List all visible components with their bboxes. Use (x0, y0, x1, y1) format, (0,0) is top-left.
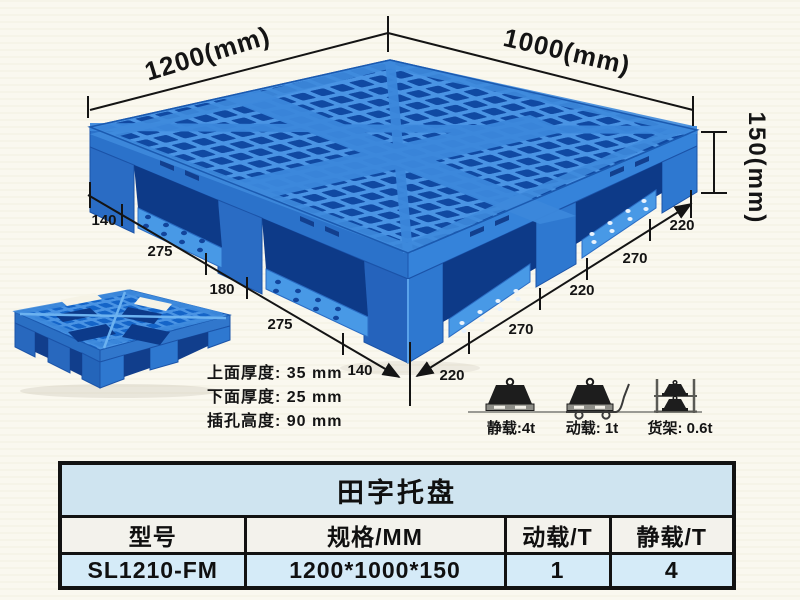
header-model: 型号 (60, 517, 245, 554)
small-pallet-shadow (20, 384, 220, 398)
height-dimension-label: 150(mm) (743, 112, 770, 225)
spec-table-title: 田字托盘 (60, 463, 734, 517)
static-load-label: 静载:4t (487, 419, 535, 437)
load-capacity-icons: 静载:4t 动载: 1t 货架: 0.6t (468, 379, 713, 437)
right-segment-label: 220 (569, 282, 594, 299)
height-dimension: 150(mm) (701, 112, 770, 225)
thickness-notes: 上面厚度: 35 mm 下面厚度: 25 mm 插孔高度: 90 mm (207, 363, 342, 430)
depth-dimension-label: 1000(mm) (501, 22, 634, 80)
right-segment-label: 220 (439, 367, 464, 384)
right-segment-label: 270 (508, 321, 533, 338)
left-segment-label: 140 (347, 362, 372, 379)
header-dynamic-load: 动载/T (505, 517, 610, 554)
spec-table-data-row: SL1210-FM 1200*1000*150 1 4 (60, 554, 734, 589)
rack-load-icon (654, 379, 697, 413)
width-dimension-label: 1200(mm) (141, 20, 274, 87)
right-segment-label: 220 (669, 217, 694, 234)
spec-table: 田字托盘 型号 规格/MM 动载/T 静载/T SL1210-FM 1200*1… (58, 461, 736, 590)
left-segment-label: 140 (91, 212, 116, 229)
fork-height-note: 插孔高度: 90 mm (207, 411, 342, 430)
spec-table-title-row: 田字托盘 (60, 463, 734, 517)
bottom-thickness-note: 下面厚度: 25 mm (207, 387, 342, 406)
right-segment-label: 270 (622, 250, 647, 267)
left-segment-label: 180 (209, 281, 234, 298)
cell-dynamic-load: 1 (505, 554, 610, 589)
left-segment-label: 275 (147, 243, 172, 260)
cell-static-load: 4 (610, 554, 734, 589)
spec-table-header-row: 型号 规格/MM 动载/T 静载/T (60, 517, 734, 554)
cell-spec: 1200*1000*150 (245, 554, 505, 589)
pallet-spec-sheet: 1200(mm) 1000(mm) 150(mm) 140 275 180 27… (0, 0, 800, 600)
cell-model: SL1210-FM (60, 554, 245, 589)
header-spec: 规格/MM (245, 517, 505, 554)
static-load-icon (486, 379, 534, 411)
small-pallet-illustration (15, 290, 230, 398)
left-segment-label: 275 (267, 316, 292, 333)
header-static-load: 静载/T (610, 517, 734, 554)
rack-load-label: 货架: 0.6t (647, 419, 712, 437)
top-thickness-note: 上面厚度: 35 mm (207, 363, 342, 382)
dynamic-load-label: 动载: 1t (566, 419, 619, 437)
